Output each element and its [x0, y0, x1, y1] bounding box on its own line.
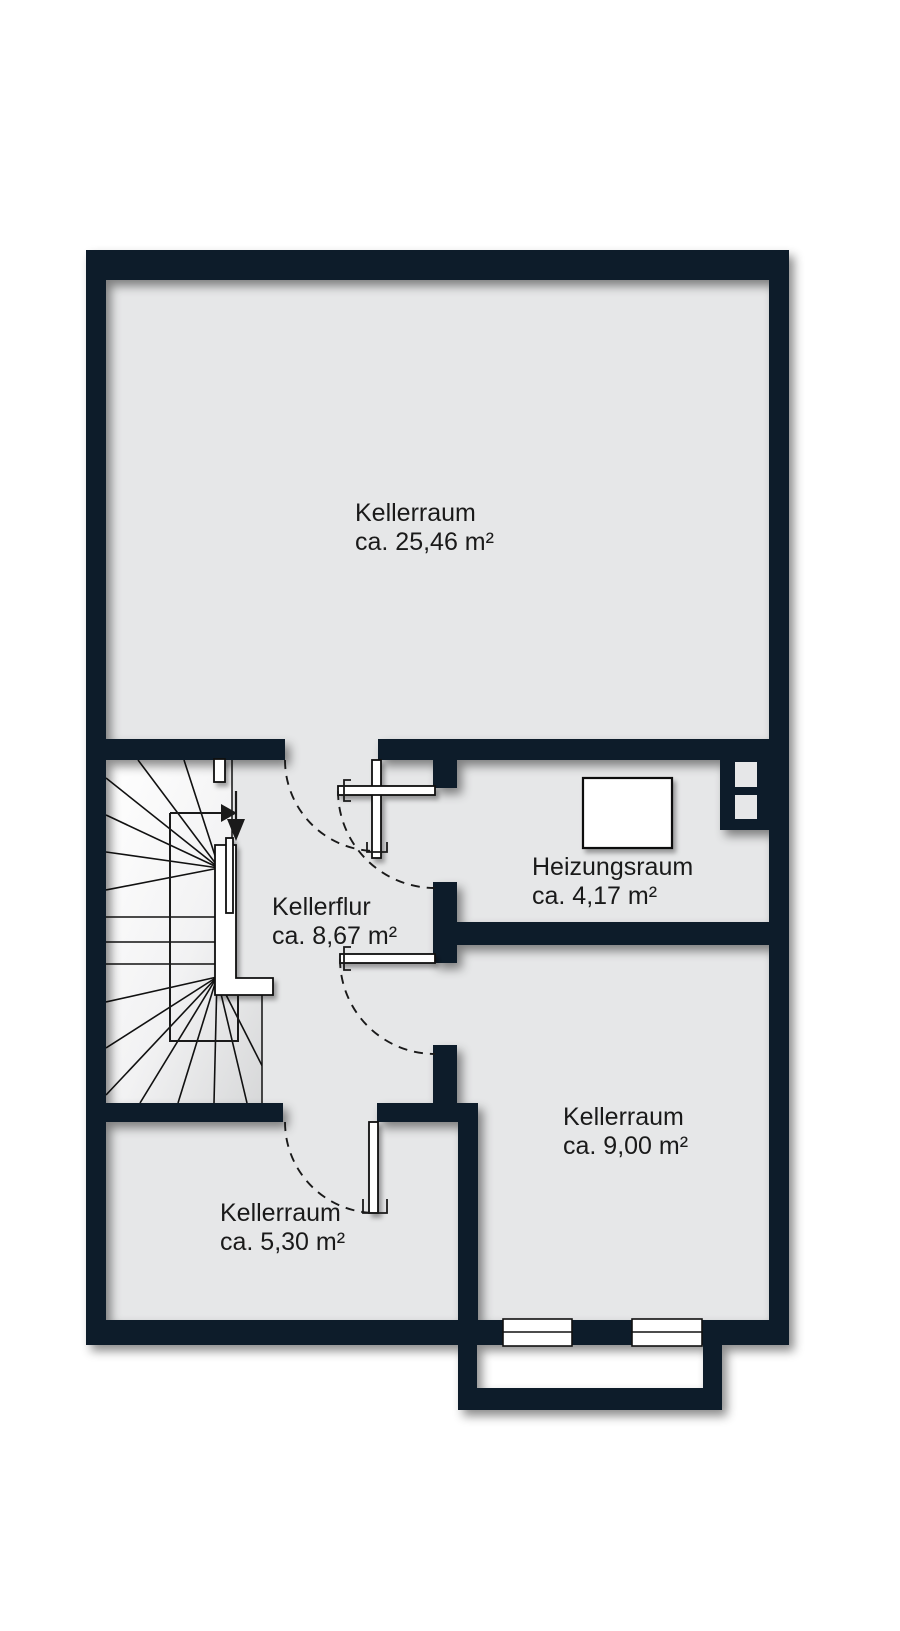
wall-interior — [458, 1122, 478, 1345]
lightwell-floor — [477, 1345, 705, 1390]
room-name: Heizungsraum — [532, 853, 693, 881]
room-name: Kellerraum — [563, 1103, 684, 1131]
chimney-vent — [735, 762, 757, 787]
stair-handrail — [226, 838, 233, 913]
room-name: Kellerraum — [220, 1199, 341, 1227]
boiler — [583, 778, 672, 848]
wall-interior — [86, 739, 285, 760]
wall-interior — [377, 1103, 478, 1122]
room-area: ca. 8,67 m² — [272, 922, 397, 950]
room-area: ca. 4,17 m² — [532, 882, 657, 910]
door-leaf — [338, 786, 435, 795]
wall-exterior-top — [86, 250, 789, 280]
wall-exterior-left — [86, 250, 106, 1345]
wall-exterior-right — [769, 250, 789, 1345]
wall-lightwell-right — [703, 1345, 722, 1410]
chimney-vent — [735, 795, 757, 819]
door-leaf — [372, 760, 381, 858]
stair-door-jamb — [214, 759, 225, 782]
room-area: ca. 5,30 m² — [220, 1228, 345, 1256]
door-leaf — [369, 1122, 378, 1213]
floor-plan-svg: Kellerraum ca. 25,46 m² Kellerflur ca. 8… — [0, 0, 900, 1631]
room-name: Kellerraum — [355, 499, 476, 527]
wall-lightwell-bottom — [458, 1388, 722, 1410]
room-area: ca. 9,00 m² — [563, 1132, 688, 1160]
room-area: ca. 25,46 m² — [355, 528, 494, 556]
wall-interior — [433, 922, 769, 945]
door-leaf — [340, 954, 435, 963]
wall-interior — [86, 1103, 283, 1122]
floor-plan-page: Kellerraum ca. 25,46 m² Kellerflur ca. 8… — [0, 0, 900, 1631]
room-name: Kellerflur — [272, 893, 371, 921]
wall-interior — [433, 739, 457, 788]
